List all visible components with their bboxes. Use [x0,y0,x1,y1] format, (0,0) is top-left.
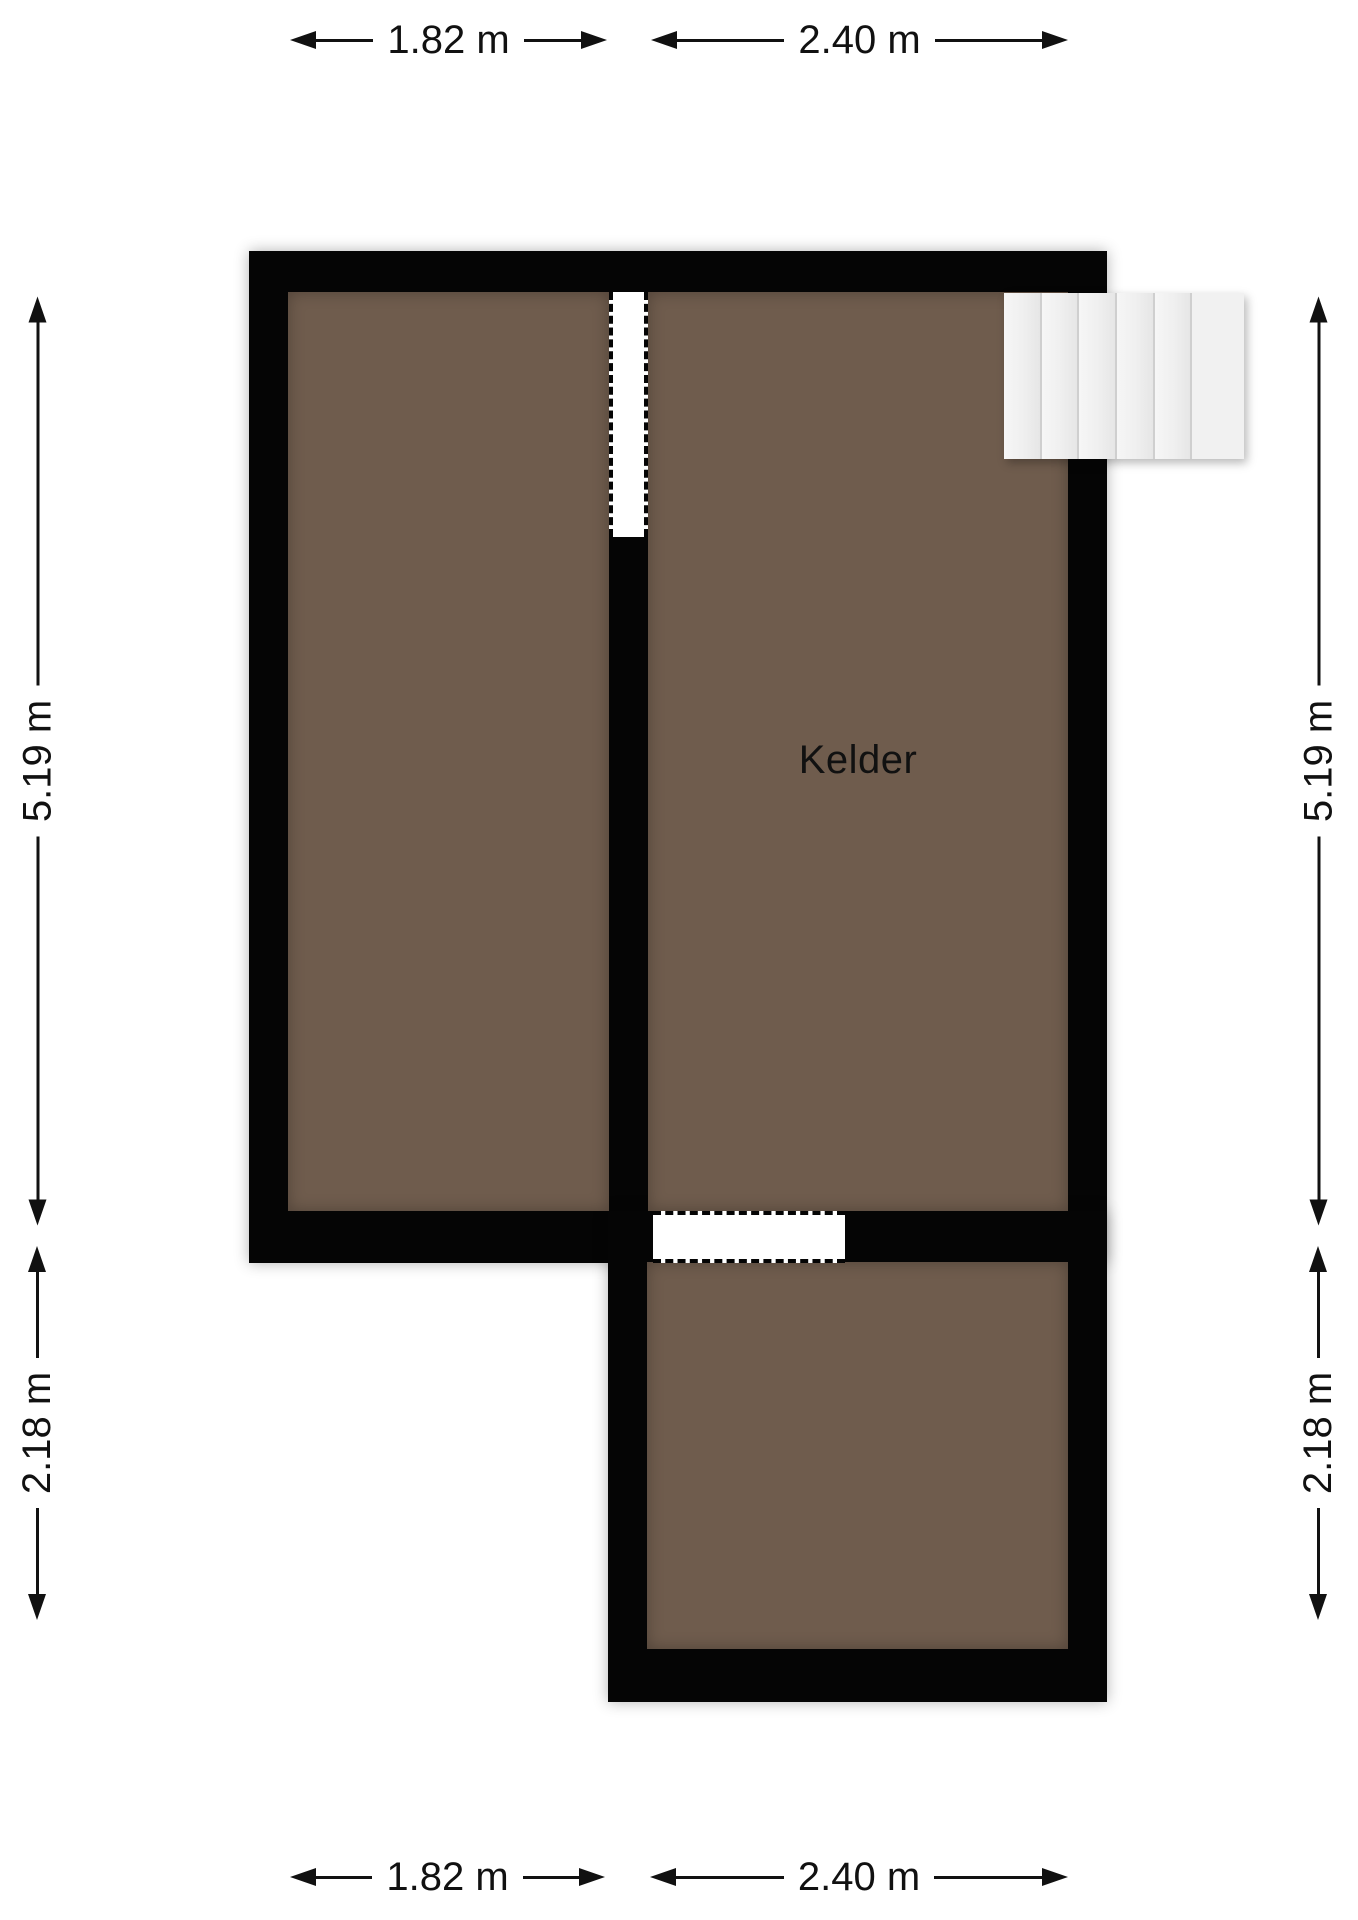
door-opening-divider-wall [609,292,648,537]
dim-label: 5.19 m [1296,686,1341,836]
dim-label: 5.19 m [15,686,60,836]
dim-line [1317,1272,1320,1358]
room-extension [647,1262,1068,1649]
dim-arrowhead [1310,1200,1328,1226]
dim-line [935,39,1042,42]
dim-line [36,322,39,685]
dimension-bottom-left: 1.82 m [290,1847,605,1907]
dim-arrowhead [579,1868,605,1886]
dimension-left-upper: 5.19 m [8,297,68,1226]
dim-line [36,1272,39,1358]
dim-line [36,1508,39,1594]
dim-arrowhead [28,1594,46,1620]
stair-tread [1190,293,1244,459]
dimension-right-lower: 2.18 m [1288,1246,1348,1620]
dim-arrowhead [1042,31,1068,49]
dim-label: 1.82 m [373,18,523,63]
dim-arrowhead [1310,296,1328,322]
dim-label: 2.18 m [1296,1358,1341,1508]
dim-line [523,1876,579,1879]
dim-label: 2.18 m [15,1358,60,1508]
dim-arrowhead [290,31,316,49]
dimension-top-right: 2.40 m [651,10,1068,70]
dim-line [1317,1508,1320,1594]
dim-label: 2.40 m [784,1855,934,1900]
room-label-kelder: Kelder [648,738,1068,783]
stair-tread [1115,293,1153,459]
dim-line [934,1876,1042,1879]
dimension-left-lower: 2.18 m [7,1246,67,1620]
dim-label: 1.82 m [372,1855,522,1900]
dimension-bottom-right: 2.40 m [650,1847,1068,1907]
stair-tread [1004,293,1040,459]
dim-arrowhead [28,1246,46,1272]
room-left [288,292,609,1211]
dimension-right-upper: 5.19 m [1289,297,1349,1226]
dim-arrowhead [29,296,47,322]
dim-line [677,39,784,42]
dim-arrowhead [651,31,677,49]
dim-line [1317,836,1320,1199]
dim-line [36,836,39,1199]
dim-line [316,1876,372,1879]
dim-line [676,1876,784,1879]
dim-line [316,39,373,42]
dim-label: 2.40 m [784,18,934,63]
floorplan-canvas: 1.82 m 2.40 m 5.19 m 2.18 m 5.19 m [0,0,1358,1920]
dim-arrowhead [29,1200,47,1226]
dim-arrowhead [1042,1868,1068,1886]
dim-arrowhead [581,31,607,49]
dim-arrowhead [1309,1594,1327,1620]
dim-line [1317,322,1320,685]
dim-arrowhead [650,1868,676,1886]
door-opening-extension-wall [653,1211,845,1263]
stair-tread [1153,293,1191,459]
stair-tread [1077,293,1115,459]
stair-tread [1040,293,1078,459]
dim-arrowhead [290,1868,316,1886]
dim-arrowhead [1309,1246,1327,1272]
stairs [1004,293,1244,459]
dim-line [524,39,581,42]
dimension-top-left: 1.82 m [290,10,607,70]
